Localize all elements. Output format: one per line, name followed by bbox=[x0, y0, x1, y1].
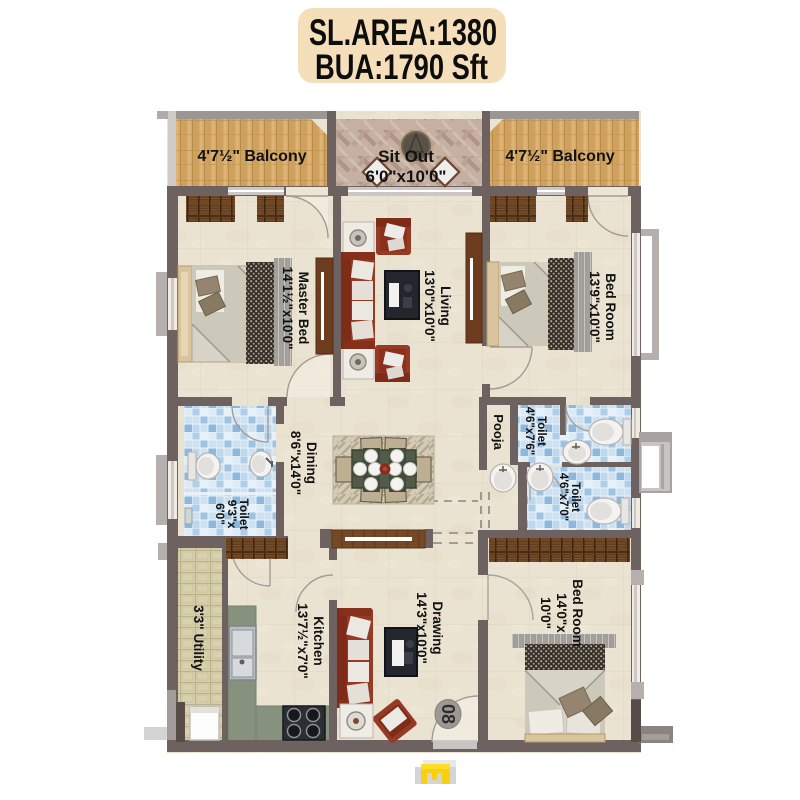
svg-text:10'0": 10'0" bbox=[538, 597, 553, 629]
svg-text:Pooja: Pooja bbox=[491, 414, 506, 450]
svg-text:13'0"x10'0": 13'0"x10'0" bbox=[422, 270, 437, 342]
svg-text:Master Bed: Master Bed bbox=[296, 272, 311, 345]
svg-text:14'0"x: 14'0"x bbox=[554, 593, 569, 633]
svg-text:4'6"x7'6": 4'6"x7'6" bbox=[523, 407, 535, 455]
svg-text:Toilet: Toilet bbox=[569, 482, 581, 512]
svg-text:4'7½" Balcony: 4'7½" Balcony bbox=[197, 148, 306, 165]
svg-text:Drawing: Drawing bbox=[430, 601, 445, 654]
svg-text:Bed Room: Bed Room bbox=[570, 579, 585, 647]
svg-text:Sit Out: Sit Out bbox=[378, 147, 434, 166]
svg-text:8'6"x14'0": 8'6"x14'0" bbox=[288, 431, 303, 495]
svg-text:Living: Living bbox=[438, 286, 453, 326]
svg-text:4'6"x7'0": 4'6"x7'0" bbox=[557, 473, 569, 521]
svg-text:6'0"x10'0": 6'0"x10'0" bbox=[366, 167, 447, 186]
svg-text:BUA:1790 Sft: BUA:1790 Sft bbox=[315, 48, 488, 87]
svg-text:14'3"x10'0": 14'3"x10'0" bbox=[414, 592, 429, 664]
svg-text:4'7½" Balcony: 4'7½" Balcony bbox=[505, 148, 614, 165]
svg-text:14'1½"x10'0": 14'1½"x10'0" bbox=[280, 266, 295, 349]
svg-text:13'7½"x7'0": 13'7½"x7'0" bbox=[295, 603, 310, 679]
svg-text:13'9"x10'0": 13'9"x10'0" bbox=[587, 271, 602, 343]
svg-text:6'0": 6'0" bbox=[213, 503, 227, 525]
svg-text:3'3" Utility: 3'3" Utility bbox=[191, 605, 206, 671]
svg-text:Kitchen: Kitchen bbox=[311, 616, 326, 666]
svg-text:Bed Room: Bed Room bbox=[603, 273, 618, 341]
svg-text:08: 08 bbox=[438, 704, 458, 724]
svg-text:Dining: Dining bbox=[304, 442, 319, 484]
svg-text:SL.AREA:1380: SL.AREA:1380 bbox=[309, 12, 497, 53]
svg-text:Toilet: Toilet bbox=[535, 416, 547, 446]
